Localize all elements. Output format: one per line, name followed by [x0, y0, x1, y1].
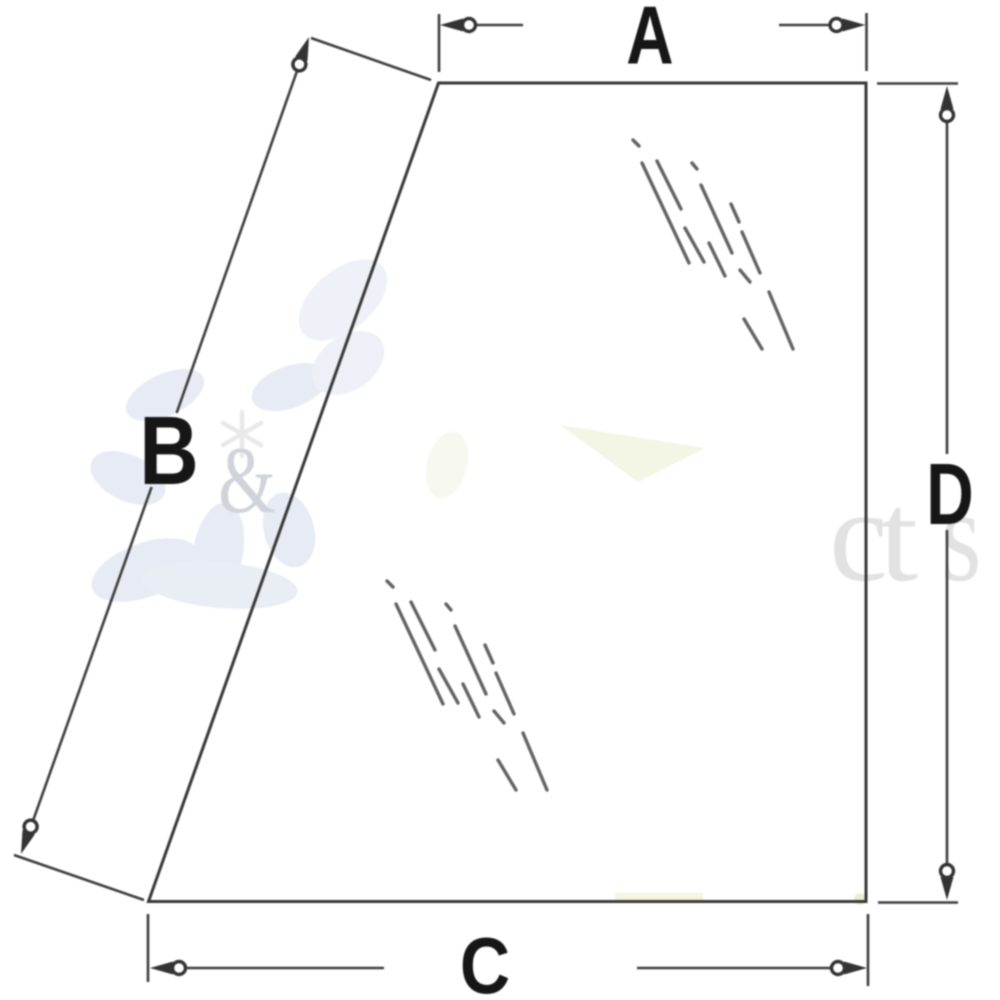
svg-text:C: C — [460, 920, 510, 1000]
svg-text:A: A — [626, 0, 673, 81]
svg-text:B: B — [139, 398, 199, 506]
svg-text:t: t — [879, 467, 918, 609]
svg-text:&: & — [218, 428, 276, 533]
svg-text:D: D — [926, 446, 973, 543]
